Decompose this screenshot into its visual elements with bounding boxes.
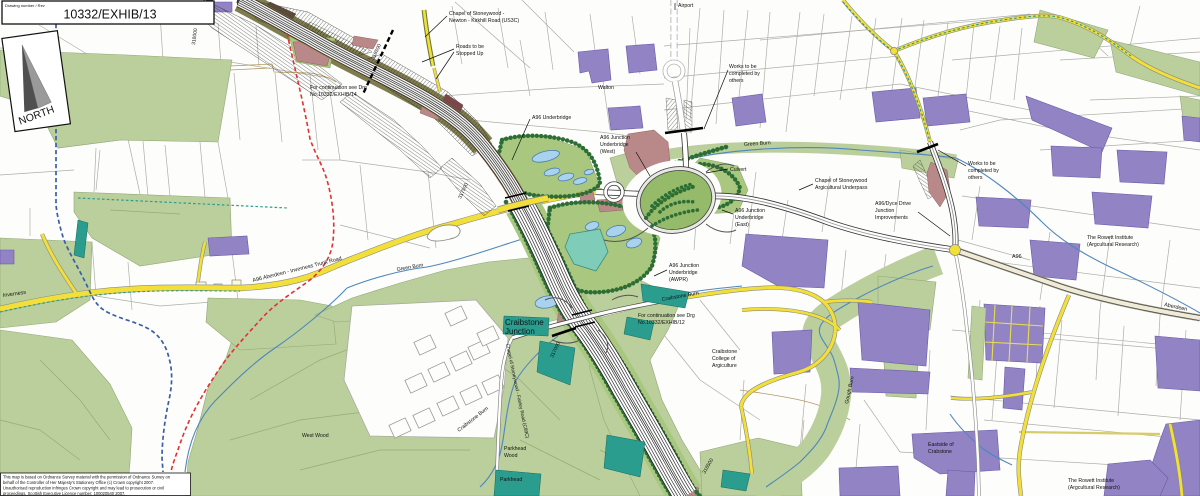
svg-text:The Rowett Institute: The Rowett Institute xyxy=(1068,478,1114,484)
svg-text:Works to be: Works to be xyxy=(968,161,996,167)
svg-text:Unauthorised reproduction infr: Unauthorised reproduction infringes Crow… xyxy=(3,485,164,490)
svg-text:This map is based on Ordnance: This map is based on Ordnance Survey mat… xyxy=(3,475,171,480)
svg-text:Argiculture: Argiculture xyxy=(712,363,737,369)
svg-text:10332/EXHIB/13: 10332/EXHIB/13 xyxy=(63,8,156,22)
svg-text:The Rowett Institute: The Rowett Institute xyxy=(1087,235,1133,241)
svg-text:Newton - Kirkhill Road (US3C): Newton - Kirkhill Road (US3C) xyxy=(449,18,519,24)
svg-text:others: others xyxy=(729,78,744,84)
svg-text:A96 Junction: A96 Junction xyxy=(669,263,699,269)
svg-text:Drawing number / Rev: Drawing number / Rev xyxy=(5,3,45,8)
svg-text:Argicultural Underpass: Argicultural Underpass xyxy=(815,185,868,191)
svg-text:For continuation see Drg: For continuation see Drg xyxy=(310,85,367,91)
svg-text:Works to be: Works to be xyxy=(729,64,757,70)
svg-text:completed by: completed by xyxy=(968,168,999,174)
svg-text:behalf of the Controller of He: behalf of the Controller of Her Majesty'… xyxy=(3,480,154,485)
svg-text:(AWPR): (AWPR) xyxy=(669,277,688,283)
svg-text:Junction: Junction xyxy=(875,208,894,214)
svg-text:Roads to be: Roads to be xyxy=(456,44,484,50)
svg-text:A96/Dyce Drive: A96/Dyce Drive xyxy=(875,201,911,207)
svg-text:No.10332/EXHIB/12: No.10332/EXHIB/12 xyxy=(638,320,685,326)
svg-text:For continuation see Drg: For continuation see Drg xyxy=(638,313,695,319)
svg-text:(East): (East) xyxy=(735,222,749,228)
svg-text:Underbridge: Underbridge xyxy=(669,270,698,276)
svg-text:Craibstone: Craibstone xyxy=(505,318,544,327)
svg-text:A96: A96 xyxy=(1012,254,1022,260)
svg-text:Junction: Junction xyxy=(505,327,535,336)
svg-text:proceedings. Scottish Executiv: proceedings. Scottish Executive Licence … xyxy=(3,491,125,496)
svg-text:completed by: completed by xyxy=(729,71,760,77)
svg-text:Culvert: Culvert xyxy=(730,167,747,173)
svg-text:Stopped Up: Stopped Up xyxy=(456,51,484,57)
svg-text:No.10332/EXHIB/14: No.10332/EXHIB/14 xyxy=(310,92,357,98)
svg-text:A96 Junction: A96 Junction xyxy=(735,208,765,214)
svg-text:Underbridge: Underbridge xyxy=(600,142,629,148)
svg-text:(Argcultural Research): (Argcultural Research) xyxy=(1068,485,1120,491)
svg-text:Improvements: Improvements xyxy=(875,215,908,221)
svg-text:Airport: Airport xyxy=(678,3,694,9)
svg-text:Parkhead: Parkhead xyxy=(504,446,526,452)
svg-text:A96 Underbridge: A96 Underbridge xyxy=(532,115,571,121)
svg-text:West Wood: West Wood xyxy=(302,433,329,439)
svg-text:Craibstone: Craibstone xyxy=(712,349,737,355)
svg-text:(Argcultural Research): (Argcultural Research) xyxy=(1087,242,1139,248)
svg-text:Crabstone: Crabstone xyxy=(928,449,952,455)
svg-text:College of: College of xyxy=(712,356,736,362)
svg-text:(West): (West) xyxy=(600,149,615,155)
svg-text:Chapel of Stoneywood: Chapel of Stoneywood xyxy=(815,178,867,184)
svg-text:A96 Junction: A96 Junction xyxy=(600,135,630,141)
svg-text:Walton: Walton xyxy=(598,85,614,91)
svg-text:Parkhead: Parkhead xyxy=(500,477,522,483)
svg-text:Underbridge: Underbridge xyxy=(735,215,764,221)
svg-text:Chapel of Stoneywood -: Chapel of Stoneywood - xyxy=(449,11,505,17)
svg-text:Eastside of: Eastside of xyxy=(928,442,954,448)
svg-text:Wood: Wood xyxy=(504,453,518,459)
svg-text:others: others xyxy=(968,175,983,181)
